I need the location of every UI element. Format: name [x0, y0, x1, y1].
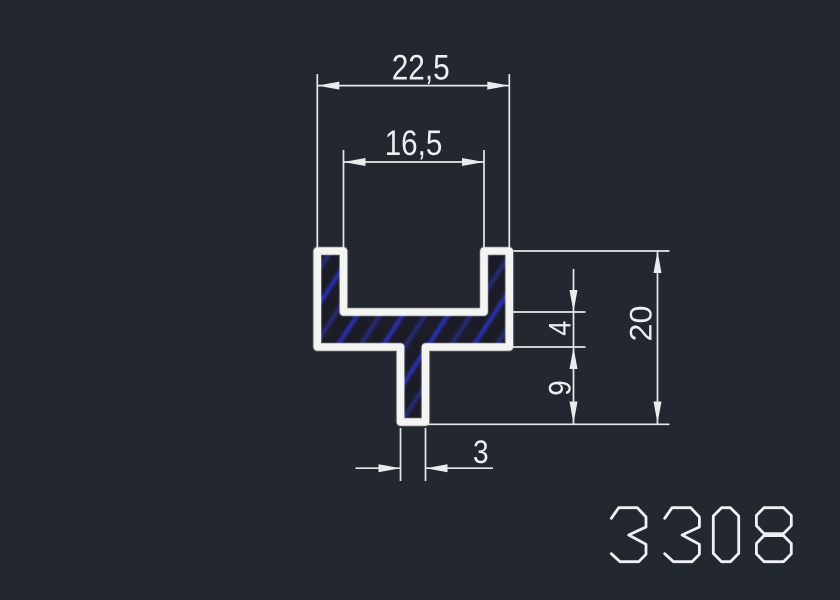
svg-text:16,5: 16,5	[385, 124, 443, 163]
svg-text:9: 9	[542, 380, 578, 396]
svg-text:22,5: 22,5	[392, 49, 450, 88]
svg-text:3: 3	[473, 434, 489, 470]
svg-text:20: 20	[622, 306, 658, 342]
svg-text:4: 4	[542, 321, 578, 336]
